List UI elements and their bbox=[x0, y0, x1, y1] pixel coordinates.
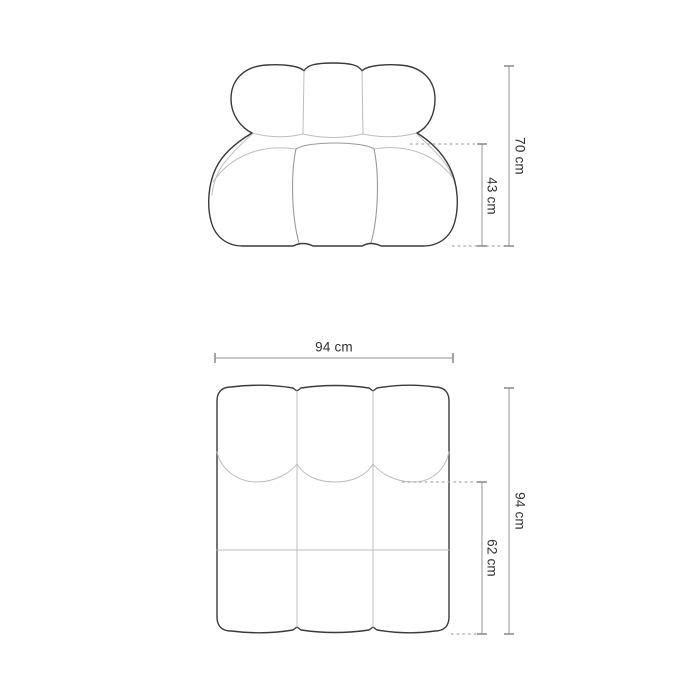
top-view-dimensions bbox=[215, 353, 514, 634]
front-total-height-label: 70 cm bbox=[513, 137, 527, 175]
top-view-outline bbox=[217, 385, 449, 633]
sofa-dimension-diagram: 70 cm 43 cm 94 cm 94 cm 62 cm bbox=[0, 0, 700, 700]
top-width-label: 94 cm bbox=[315, 340, 353, 354]
front-back-divider-left-seam bbox=[303, 71, 304, 134]
top-seat-depth-label: 62 cm bbox=[485, 539, 499, 577]
front-center-cushion-left-seam bbox=[293, 149, 299, 243]
top-view-figure bbox=[217, 385, 449, 633]
front-center-cushion-top-seam bbox=[296, 143, 374, 149]
top-view-backrest-arc-left bbox=[217, 452, 297, 482]
front-armrest-seam-right bbox=[417, 134, 457, 195]
front-seat-silhouette bbox=[209, 133, 458, 246]
top-view-backrest-arc-right bbox=[373, 452, 449, 482]
top-total-depth-label: 94 cm bbox=[513, 492, 527, 530]
front-back-cushion-left-outline bbox=[231, 65, 304, 133]
front-view-dimensions bbox=[410, 66, 514, 246]
front-back-base-seam-right bbox=[363, 133, 417, 137]
front-seat-top-seam-right bbox=[374, 148, 453, 178]
front-back-cushion-center-outline bbox=[304, 63, 362, 71]
top-view-backrest-arc-center bbox=[297, 464, 373, 482]
front-back-base-seam-left bbox=[252, 133, 303, 137]
front-back-cushion-right-outline bbox=[362, 65, 435, 133]
front-center-cushion-right-seam bbox=[371, 149, 377, 243]
front-back-base-seam-center bbox=[303, 134, 363, 138]
front-view-figure bbox=[209, 63, 458, 246]
front-seat-height-label: 43 cm bbox=[485, 177, 499, 215]
front-back-divider-right-seam bbox=[362, 71, 363, 134]
front-seat-top-seam-left bbox=[213, 148, 296, 182]
